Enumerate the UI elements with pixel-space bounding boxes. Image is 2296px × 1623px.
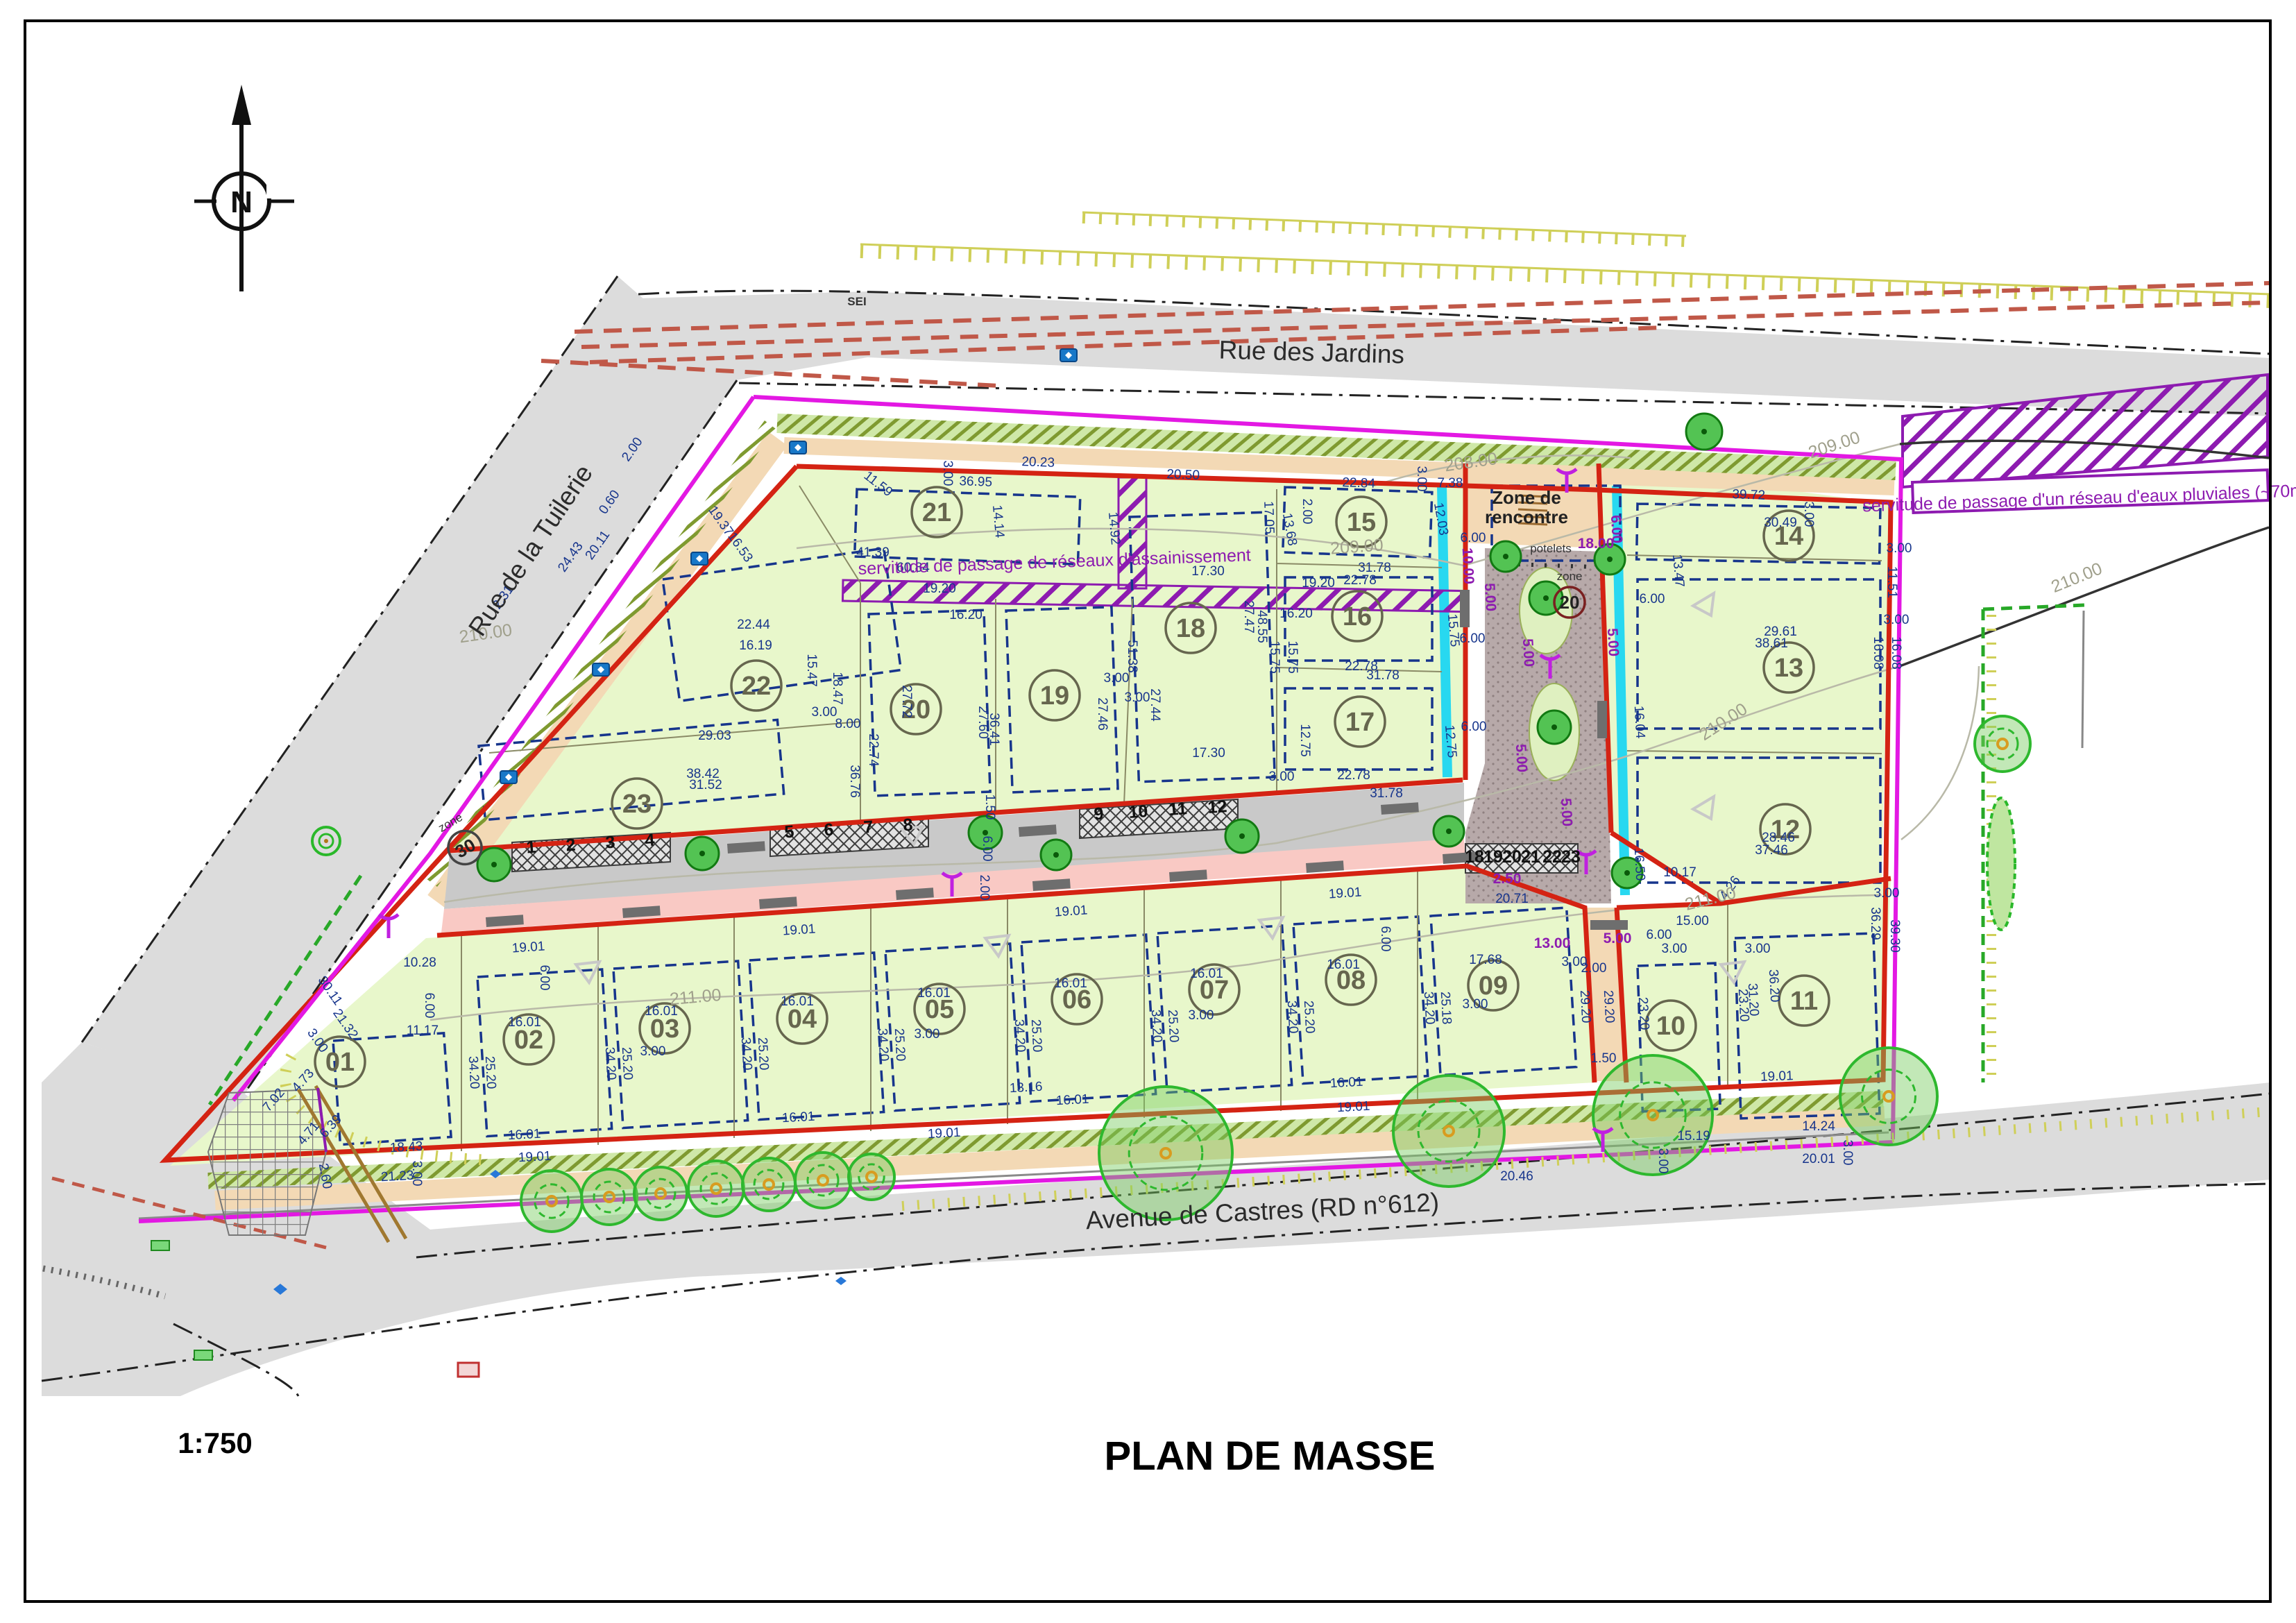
tree-center	[1446, 829, 1452, 834]
dimension-label: 20.01	[1802, 1152, 1835, 1166]
dimension-label: 25.20	[755, 1037, 771, 1071]
tree-center	[1503, 554, 1508, 559]
tree-center	[699, 851, 705, 856]
dimension-label: 3.00	[1874, 886, 1900, 901]
dimension-label: 27.47	[1241, 600, 1256, 634]
tree-canopy	[849, 1154, 894, 1200]
dimension-label: 34.20	[466, 1055, 482, 1089]
parking-space-number: 4	[645, 831, 656, 851]
dimension-label: 17.68	[1469, 953, 1502, 967]
dimension-label: 3.00	[1656, 1148, 1670, 1174]
dimension-label: 19.01	[1336, 1099, 1370, 1115]
dimension-label-purple: 5.00	[1513, 744, 1530, 773]
dimension-label: 18.47	[830, 672, 844, 705]
zone-20-word: zone	[1557, 570, 1583, 583]
dimension-label: 6.00	[1647, 928, 1672, 942]
dimension-label: 6.00	[1461, 531, 1486, 545]
dimension-label: 1.50	[1591, 1051, 1617, 1066]
utility-box-icon	[691, 552, 708, 565]
parking-space-number: 21	[1521, 847, 1540, 867]
dimension-label: 36.20	[1766, 969, 1782, 1003]
parking-space-number: 9	[1094, 804, 1105, 824]
tree-center	[1701, 429, 1707, 434]
potelets-label: potelets	[1530, 542, 1572, 555]
dimension-label: 31.78	[1370, 786, 1403, 801]
dimension-label: 34.20	[1284, 1000, 1300, 1034]
dimension-label-purple: 18.00	[1578, 536, 1615, 552]
utility-box-icon	[593, 663, 609, 676]
lot-number: 04	[788, 1005, 817, 1034]
dimension-label: 30.49	[1764, 516, 1797, 530]
dimension-label: 3.00	[1801, 502, 1816, 527]
parking-space-number: 12	[1207, 797, 1228, 817]
dimension-label-purple: 5.00	[1481, 583, 1499, 612]
dimension-label: 38.61	[1755, 636, 1788, 651]
dimension-label: 16.01	[1054, 976, 1087, 991]
dimension-label: 6.00	[980, 836, 994, 862]
parking-space-number: 11	[1168, 799, 1187, 819]
block-east	[1599, 465, 1891, 902]
dimension-label: 15.47	[804, 654, 819, 687]
tree-center	[983, 830, 988, 835]
north-arrow: N	[194, 85, 294, 291]
dimension-label: 23.20	[1635, 996, 1651, 1030]
dimension-label: 6.00	[537, 965, 552, 991]
dimension-label: 6.00	[1461, 720, 1487, 734]
dimension-label: 22.78	[1343, 573, 1377, 588]
parking-space-number: 10	[1128, 801, 1149, 822]
dimension-label: 51.38	[1125, 640, 1139, 673]
dimension-label: 14.92	[1105, 511, 1123, 545]
parking-space-number: 22	[1542, 847, 1562, 867]
dimension-label: 14.14	[989, 504, 1007, 539]
tree-large-icon	[521, 1171, 582, 1232]
dimension-label: 25.18	[1438, 991, 1454, 1025]
utility-box-icon	[790, 441, 806, 454]
dimension-label: 36.41	[987, 713, 1001, 746]
dimension-label: 3.00	[1745, 942, 1771, 956]
dimension-label: 3.00	[1662, 942, 1687, 956]
dimension-label: 19.20	[923, 581, 956, 596]
dimension-label: 3.00	[1840, 1140, 1855, 1166]
tree-center	[324, 839, 328, 843]
dimension-label: 34.20	[1148, 1009, 1164, 1043]
dimension-label: 18.43	[389, 1139, 423, 1155]
dimension-label: 36.95	[959, 474, 992, 490]
dimension-label: 3.00	[1884, 613, 1910, 627]
parking-space-number: 5	[784, 822, 795, 842]
north-letter: N	[230, 185, 253, 219]
tree-canopy	[634, 1167, 687, 1220]
plan-sheet: 0102030405060708091011121314151617181920…	[0, 0, 2296, 1623]
dimension-label: 25.20	[482, 1055, 498, 1089]
dimension-label: 22.84	[1342, 475, 1376, 491]
dimension-label: 20.71	[1495, 892, 1529, 906]
dimension-label: 1.50	[983, 794, 997, 820]
lot-number: 15	[1347, 508, 1376, 537]
dimension-label: 3.00	[1104, 671, 1130, 686]
tree-large-icon	[581, 1169, 637, 1225]
lot-number: 01	[325, 1048, 355, 1077]
tree-icon	[1686, 414, 1722, 450]
dimension-label: 17.05	[1261, 501, 1277, 534]
parking-space-number: 23	[1561, 847, 1581, 867]
dimension-label: 27.72	[899, 685, 914, 718]
tree-center	[1624, 870, 1630, 876]
tree-canopy	[521, 1171, 582, 1232]
dimension-label: 29.03	[698, 729, 731, 743]
dimension-label: 25.20	[1165, 1009, 1181, 1043]
parking-space-number: 18	[1465, 847, 1484, 867]
tree-canopy	[1840, 1048, 1937, 1145]
tree-canopy	[1593, 1055, 1712, 1175]
driveway-apron	[1597, 701, 1607, 738]
dimension-label: 10.17	[1663, 865, 1697, 880]
dimension-label-purple: 5.00	[1520, 638, 1537, 668]
lot-number: 17	[1345, 708, 1375, 737]
dimension-label: 16.19	[739, 638, 772, 653]
dimension-label: 16.04	[1631, 705, 1647, 739]
block-lots-10-11	[1618, 880, 1891, 1081]
driveway-apron	[1460, 590, 1470, 627]
dimension-label: 3.00	[1562, 955, 1588, 969]
lot-number: 13	[1774, 654, 1803, 683]
dimension-label-purple: 2.50	[1493, 871, 1522, 887]
tree-center	[1239, 833, 1245, 839]
dimension-label: 3.00	[1269, 770, 1295, 784]
tree-icon	[477, 848, 511, 881]
shrub-mass	[1987, 798, 2015, 930]
parking-space-number: 6	[824, 820, 835, 840]
dimension-label: 34.20	[1012, 1019, 1028, 1053]
dimension-label: 16.01	[1329, 1075, 1363, 1091]
lot-number: 02	[514, 1026, 543, 1055]
dimension-label: 16.01	[508, 1015, 541, 1030]
dimension-label: 6.00	[1640, 592, 1665, 606]
dimension-label: 19.01	[927, 1125, 961, 1141]
dimension-label: 19.01	[511, 939, 545, 955]
dimension-label: 17.30	[1192, 746, 1225, 760]
dimension-label: 15.75	[1445, 613, 1462, 647]
dimension-label: 39.72	[1732, 487, 1765, 503]
dimension-label: 16.20	[1279, 606, 1313, 621]
street-light-icon	[379, 915, 398, 938]
tree-center	[491, 862, 497, 867]
dimension-label: 25.20	[1028, 1019, 1044, 1053]
tree-large-icon	[795, 1153, 851, 1208]
dimension-label: 16.01	[1327, 958, 1360, 972]
dimension-label: 25.20	[1301, 1000, 1317, 1034]
dimension-label: 13.47	[1669, 554, 1687, 588]
dimension-label: 20.50	[1166, 467, 1200, 483]
dimension-label: 16.01	[1190, 967, 1223, 981]
dimension-label: 3.00	[1887, 541, 1912, 556]
dimension-label: 12.75	[1298, 724, 1312, 757]
dimension-label: 16.08	[1889, 636, 1903, 670]
dimension-label: 6.00	[1378, 926, 1393, 952]
parking-space-number: 3	[605, 833, 616, 853]
tree-icon	[1490, 541, 1521, 572]
dimension-label: 11.51	[1885, 566, 1899, 598]
tree-large-icon	[1840, 1048, 1937, 1145]
tree-canopy	[1393, 1076, 1504, 1187]
dimension-label: 12.75	[1442, 724, 1459, 758]
tree-icon	[686, 837, 719, 870]
dimension-label: 16.01	[507, 1127, 541, 1143]
parking-space-number: 2	[566, 835, 577, 856]
tree-canopy	[688, 1161, 744, 1216]
dimension-label-purple: 5.00	[1558, 798, 1575, 827]
dimension-label: 16.01	[1055, 1092, 1089, 1108]
dimension-label: 15.19	[1677, 1129, 1710, 1144]
dimension-label: 7.38	[1438, 476, 1463, 491]
lot-number: 16	[1343, 602, 1372, 631]
dimension-label: 2.00	[1300, 499, 1314, 525]
tree-icon	[1434, 816, 1464, 847]
lot-number: 21	[922, 498, 951, 527]
dimension-label-purple: 5.00	[1604, 628, 1622, 657]
dimension-label: 16.01	[917, 986, 951, 1001]
dimension-label: 16.50	[1631, 847, 1647, 881]
sei-label: SEI	[847, 295, 866, 308]
zone-rencontre-line1: Zone de	[1492, 487, 1561, 508]
dimension-label: 16.01	[781, 994, 814, 1009]
site-plan-canvas: 0102030405060708091011121314151617181920…	[0, 0, 2296, 1623]
dimension-label: 14.24	[1802, 1119, 1835, 1134]
dimension-label: 19.01	[782, 921, 816, 938]
lot-number: 09	[1479, 971, 1508, 1001]
parking-space-number: 7	[863, 817, 874, 838]
dimension-label: 8.00	[835, 717, 861, 731]
tree-icon	[1041, 840, 1071, 870]
utility-box-icon	[500, 771, 517, 783]
dimension-label: 19.20	[1302, 576, 1335, 590]
lot-number: 11	[1790, 987, 1818, 1016]
parking-space-number: 19	[1483, 847, 1503, 867]
dimension-label: 34.20	[602, 1046, 618, 1080]
parking-space-number: 8	[903, 815, 914, 835]
dimension-label: 16.01	[781, 1110, 815, 1125]
tree-canopy	[795, 1153, 851, 1208]
tree-large-icon	[849, 1154, 894, 1200]
tree-canopy	[581, 1169, 637, 1225]
tree-canopy	[1975, 716, 2030, 772]
tree-large-icon	[688, 1161, 744, 1216]
lot-number: 18	[1176, 614, 1205, 643]
dimension-label: 20.46	[1500, 1169, 1533, 1184]
dimension-label: 15.75	[1285, 640, 1300, 674]
dimension-label: 25.20	[892, 1028, 908, 1062]
dimension-label: 21.23	[380, 1169, 414, 1184]
tree-large-icon	[1975, 716, 2030, 772]
tree-large-icon	[1393, 1076, 1504, 1187]
dimension-label-purple: 5.00	[1604, 931, 1632, 946]
dimension-label: 3.00	[1414, 466, 1429, 492]
dimension-label: 2.00	[977, 875, 992, 901]
dimension-label: 31.20	[1745, 983, 1761, 1017]
tree-center	[1607, 556, 1613, 562]
dimension-label: 3.00	[1189, 1008, 1214, 1023]
lot-number: 19	[1040, 681, 1069, 711]
dimension-label-purple: 13.00	[1534, 935, 1571, 951]
dimension-label: 16.08	[1871, 636, 1885, 670]
dimension-label: 15.00	[1676, 914, 1709, 928]
dimension-label: 3.00	[640, 1044, 666, 1059]
tree-large-icon	[1593, 1055, 1712, 1175]
fence-line	[2082, 611, 2084, 748]
zone-20-number: 20	[1560, 592, 1580, 613]
dimension-label: 19.01	[518, 1149, 552, 1165]
parking-space-number: 1	[526, 838, 537, 858]
scale-label: 1:750	[178, 1427, 252, 1459]
contour-label: 209.00	[1329, 535, 1384, 558]
tree-center	[1551, 724, 1557, 730]
dimension-label: 19.01	[1328, 885, 1362, 901]
tree-icon	[1225, 819, 1259, 853]
zone-rencontre-line2: rencontre	[1485, 507, 1568, 527]
driveway-apron	[1590, 920, 1628, 930]
dimension-label: 31.52	[689, 778, 722, 792]
dimension-label: 20.23	[1021, 454, 1055, 470]
dimension-label: 3.00	[915, 1027, 940, 1042]
dimension-label: 22.44	[737, 618, 770, 632]
tree-large-icon	[634, 1167, 687, 1220]
tree-large-icon	[742, 1158, 795, 1211]
dimension-label: 22.78	[1337, 768, 1370, 783]
tree-canopy	[742, 1158, 795, 1211]
dimension-label: 48.55	[1255, 610, 1269, 643]
dimension-label: 6.00	[422, 993, 436, 1019]
dimension-label: 10.28	[403, 955, 436, 970]
dimension-label: 36.76	[847, 765, 862, 798]
dimension-label-purple: 6.00	[1608, 515, 1625, 544]
plan-title: PLAN DE MASSE	[1105, 1434, 1436, 1479]
dimension-label: 39.30	[1887, 919, 1902, 953]
dimension-label: 34.20	[1421, 991, 1437, 1025]
dimension-label: 3.00	[1463, 997, 1488, 1012]
dimension-label: 25.20	[619, 1046, 635, 1080]
dimension-label: 31.78	[1366, 668, 1400, 683]
dimension-label: 29.20	[1601, 989, 1617, 1023]
dimension-label: 6.00	[1460, 631, 1486, 646]
dimension-label: 34.20	[738, 1037, 754, 1071]
lot-number: 10	[1656, 1012, 1685, 1041]
dimension-label: 36.29	[1868, 907, 1882, 940]
dimension-label-purple: 10.00	[1459, 547, 1477, 585]
dimension-label: 19.01	[1054, 903, 1088, 919]
utility-box-icon	[1060, 349, 1077, 362]
lot-number: 22	[742, 672, 771, 701]
dimension-label: 16.20	[949, 608, 983, 622]
lot-number: 23	[622, 790, 652, 819]
tree-center	[1543, 595, 1549, 601]
dimension-label: 11.17	[407, 1023, 439, 1038]
dimension-label: 3.00	[940, 461, 955, 486]
tree-center	[1053, 852, 1059, 858]
dimension-label: 34.20	[875, 1028, 891, 1062]
dimension-label: 13.16	[1009, 1080, 1043, 1096]
dimension-label: 3.00	[1125, 690, 1150, 705]
parking-space-number: 20	[1502, 847, 1522, 867]
dimension-label: 29.20	[1577, 989, 1593, 1023]
dimension-label: 19.01	[1760, 1069, 1794, 1085]
dimension-label: 3.00	[812, 705, 837, 720]
dimension-label: 22.74	[866, 733, 881, 767]
street-name-jardins: Rue des Jardins	[1218, 336, 1404, 369]
dimension-label: 37.46	[1755, 843, 1788, 858]
tree-icon	[1538, 711, 1571, 744]
dimension-label: 27.46	[1095, 697, 1109, 731]
dimension-label: 15.75	[1267, 640, 1282, 674]
lot-number: 03	[650, 1014, 679, 1044]
